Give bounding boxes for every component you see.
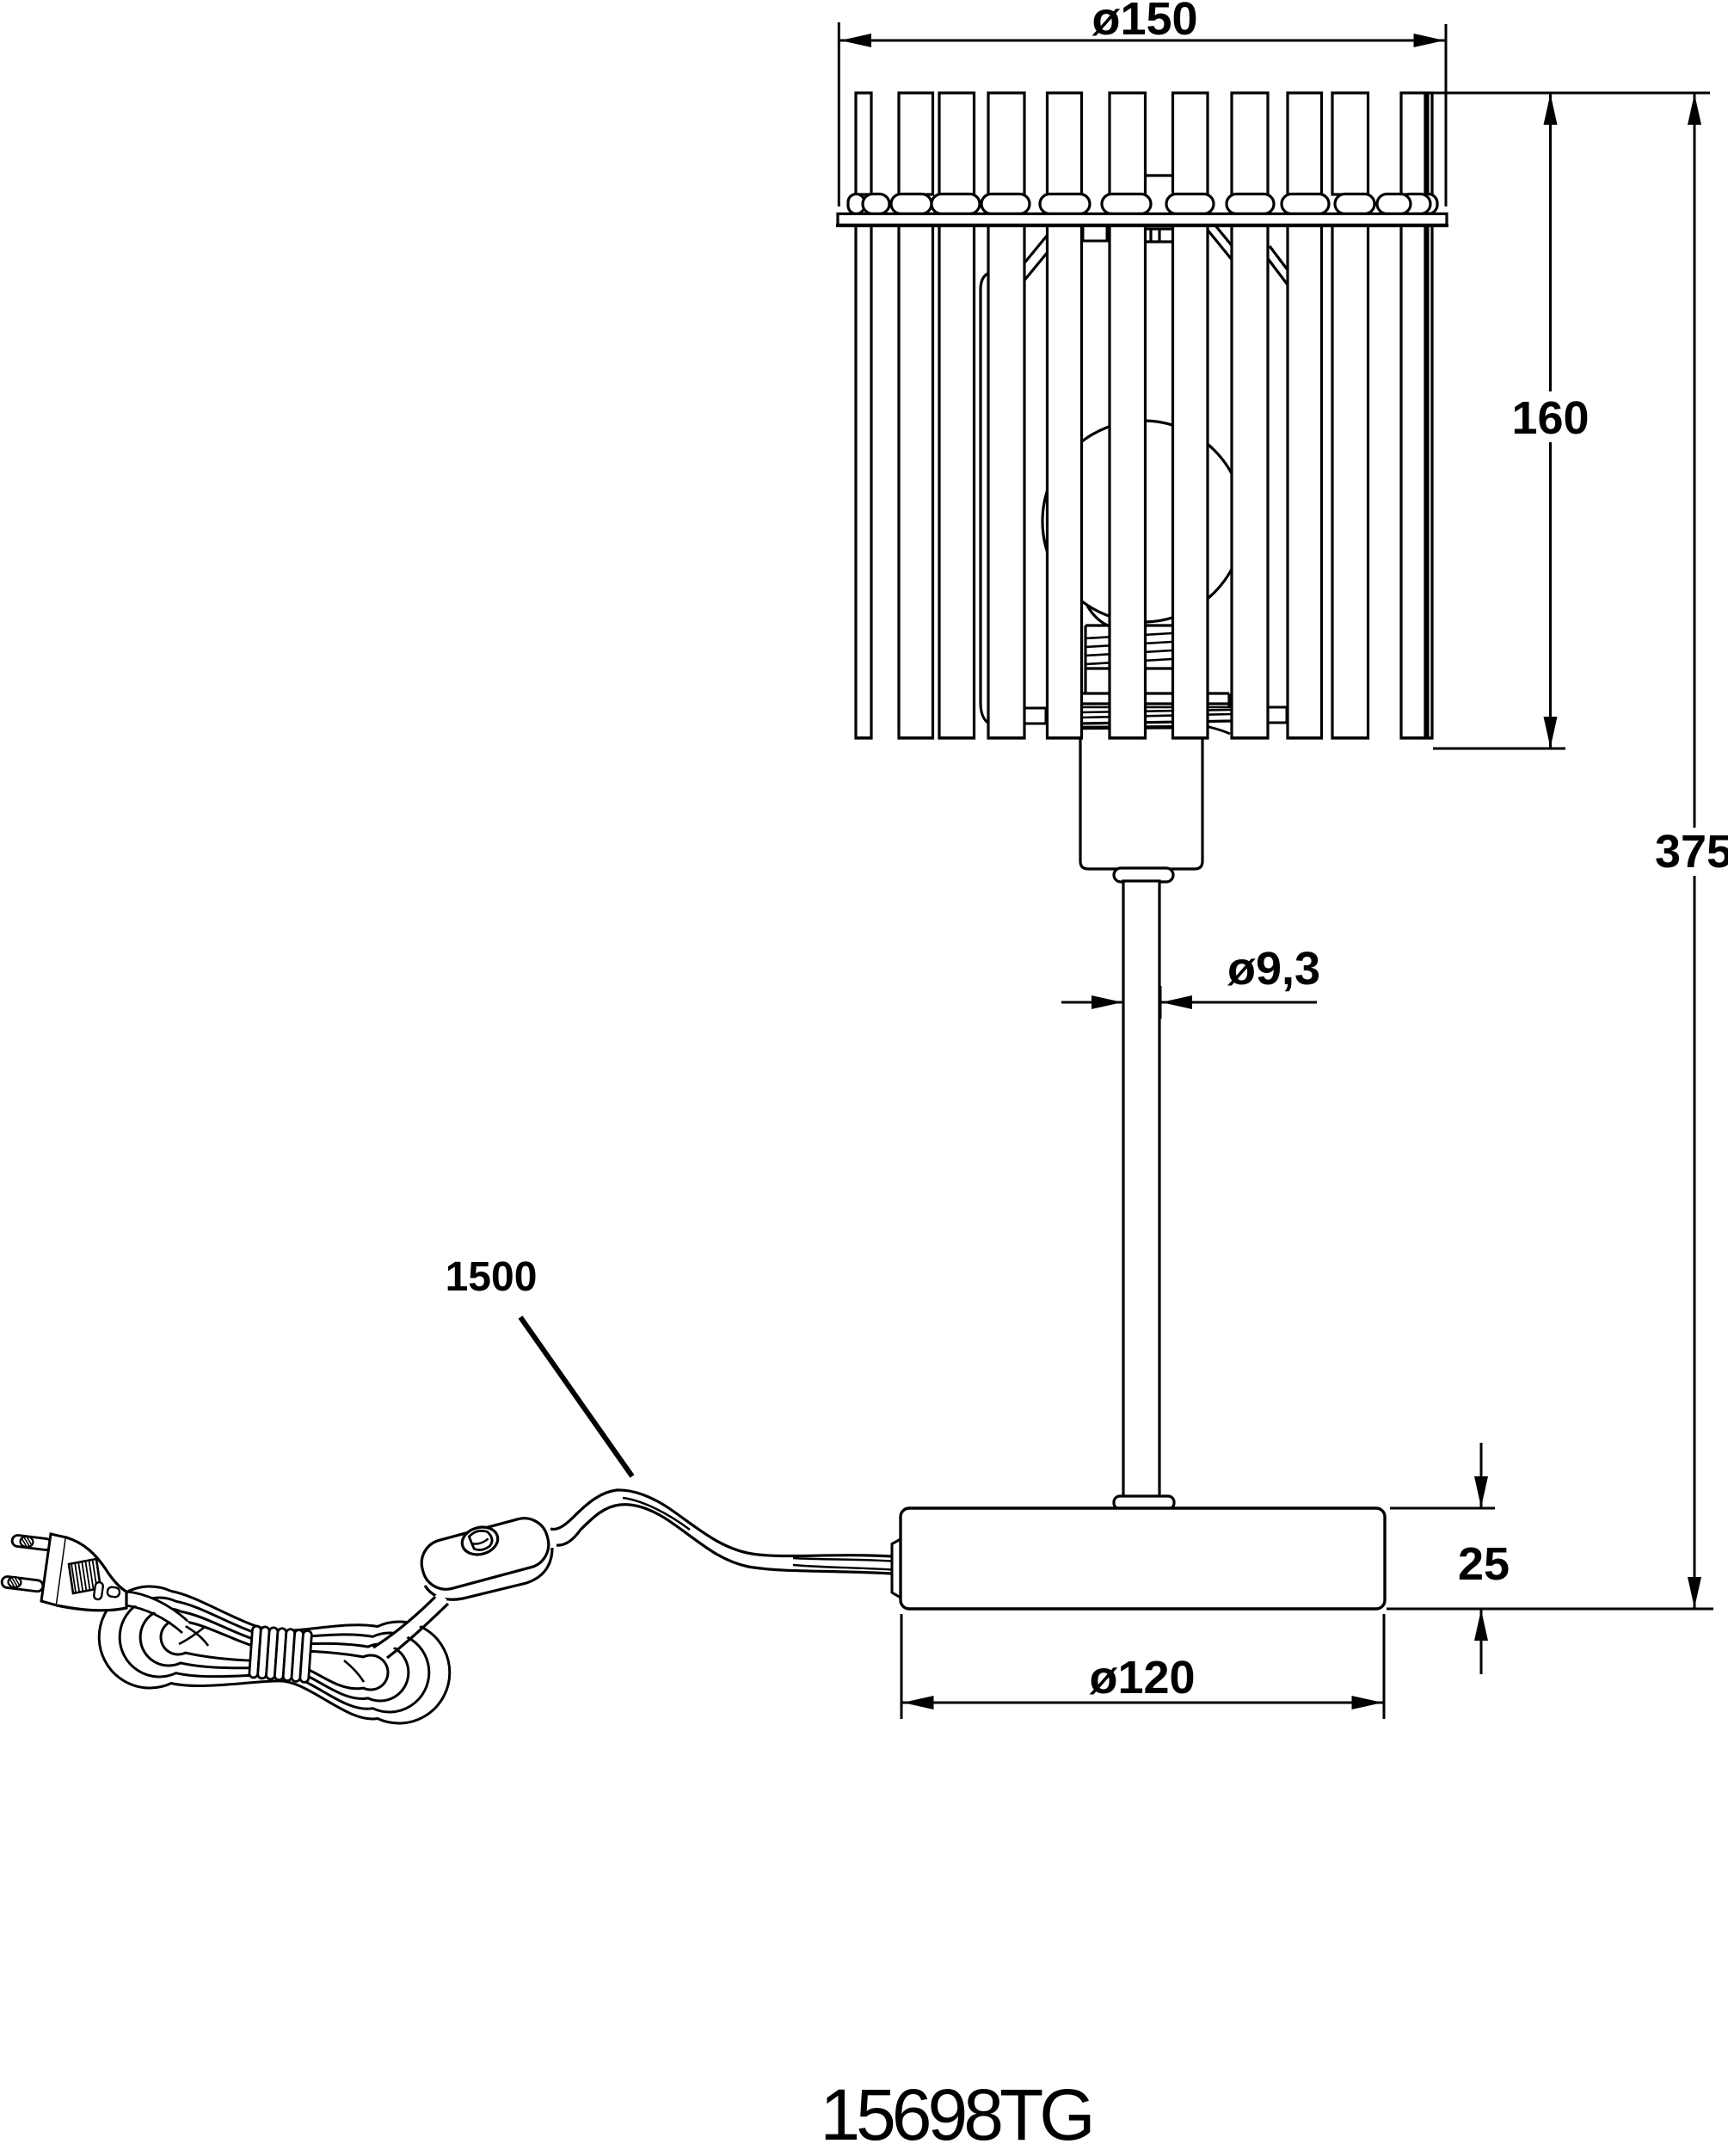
svg-text:25: 25 xyxy=(1458,1538,1510,1590)
svg-text:15698TG: 15698TG xyxy=(820,2074,1091,2155)
svg-text:ø120: ø120 xyxy=(1089,1652,1195,1703)
svg-text:160: 160 xyxy=(1511,392,1589,444)
svg-text:ø150: ø150 xyxy=(1092,0,1197,45)
svg-text:ø9,3: ø9,3 xyxy=(1227,943,1320,995)
svg-text:1500: 1500 xyxy=(446,1254,538,1300)
svg-text:375: 375 xyxy=(1655,826,1728,878)
